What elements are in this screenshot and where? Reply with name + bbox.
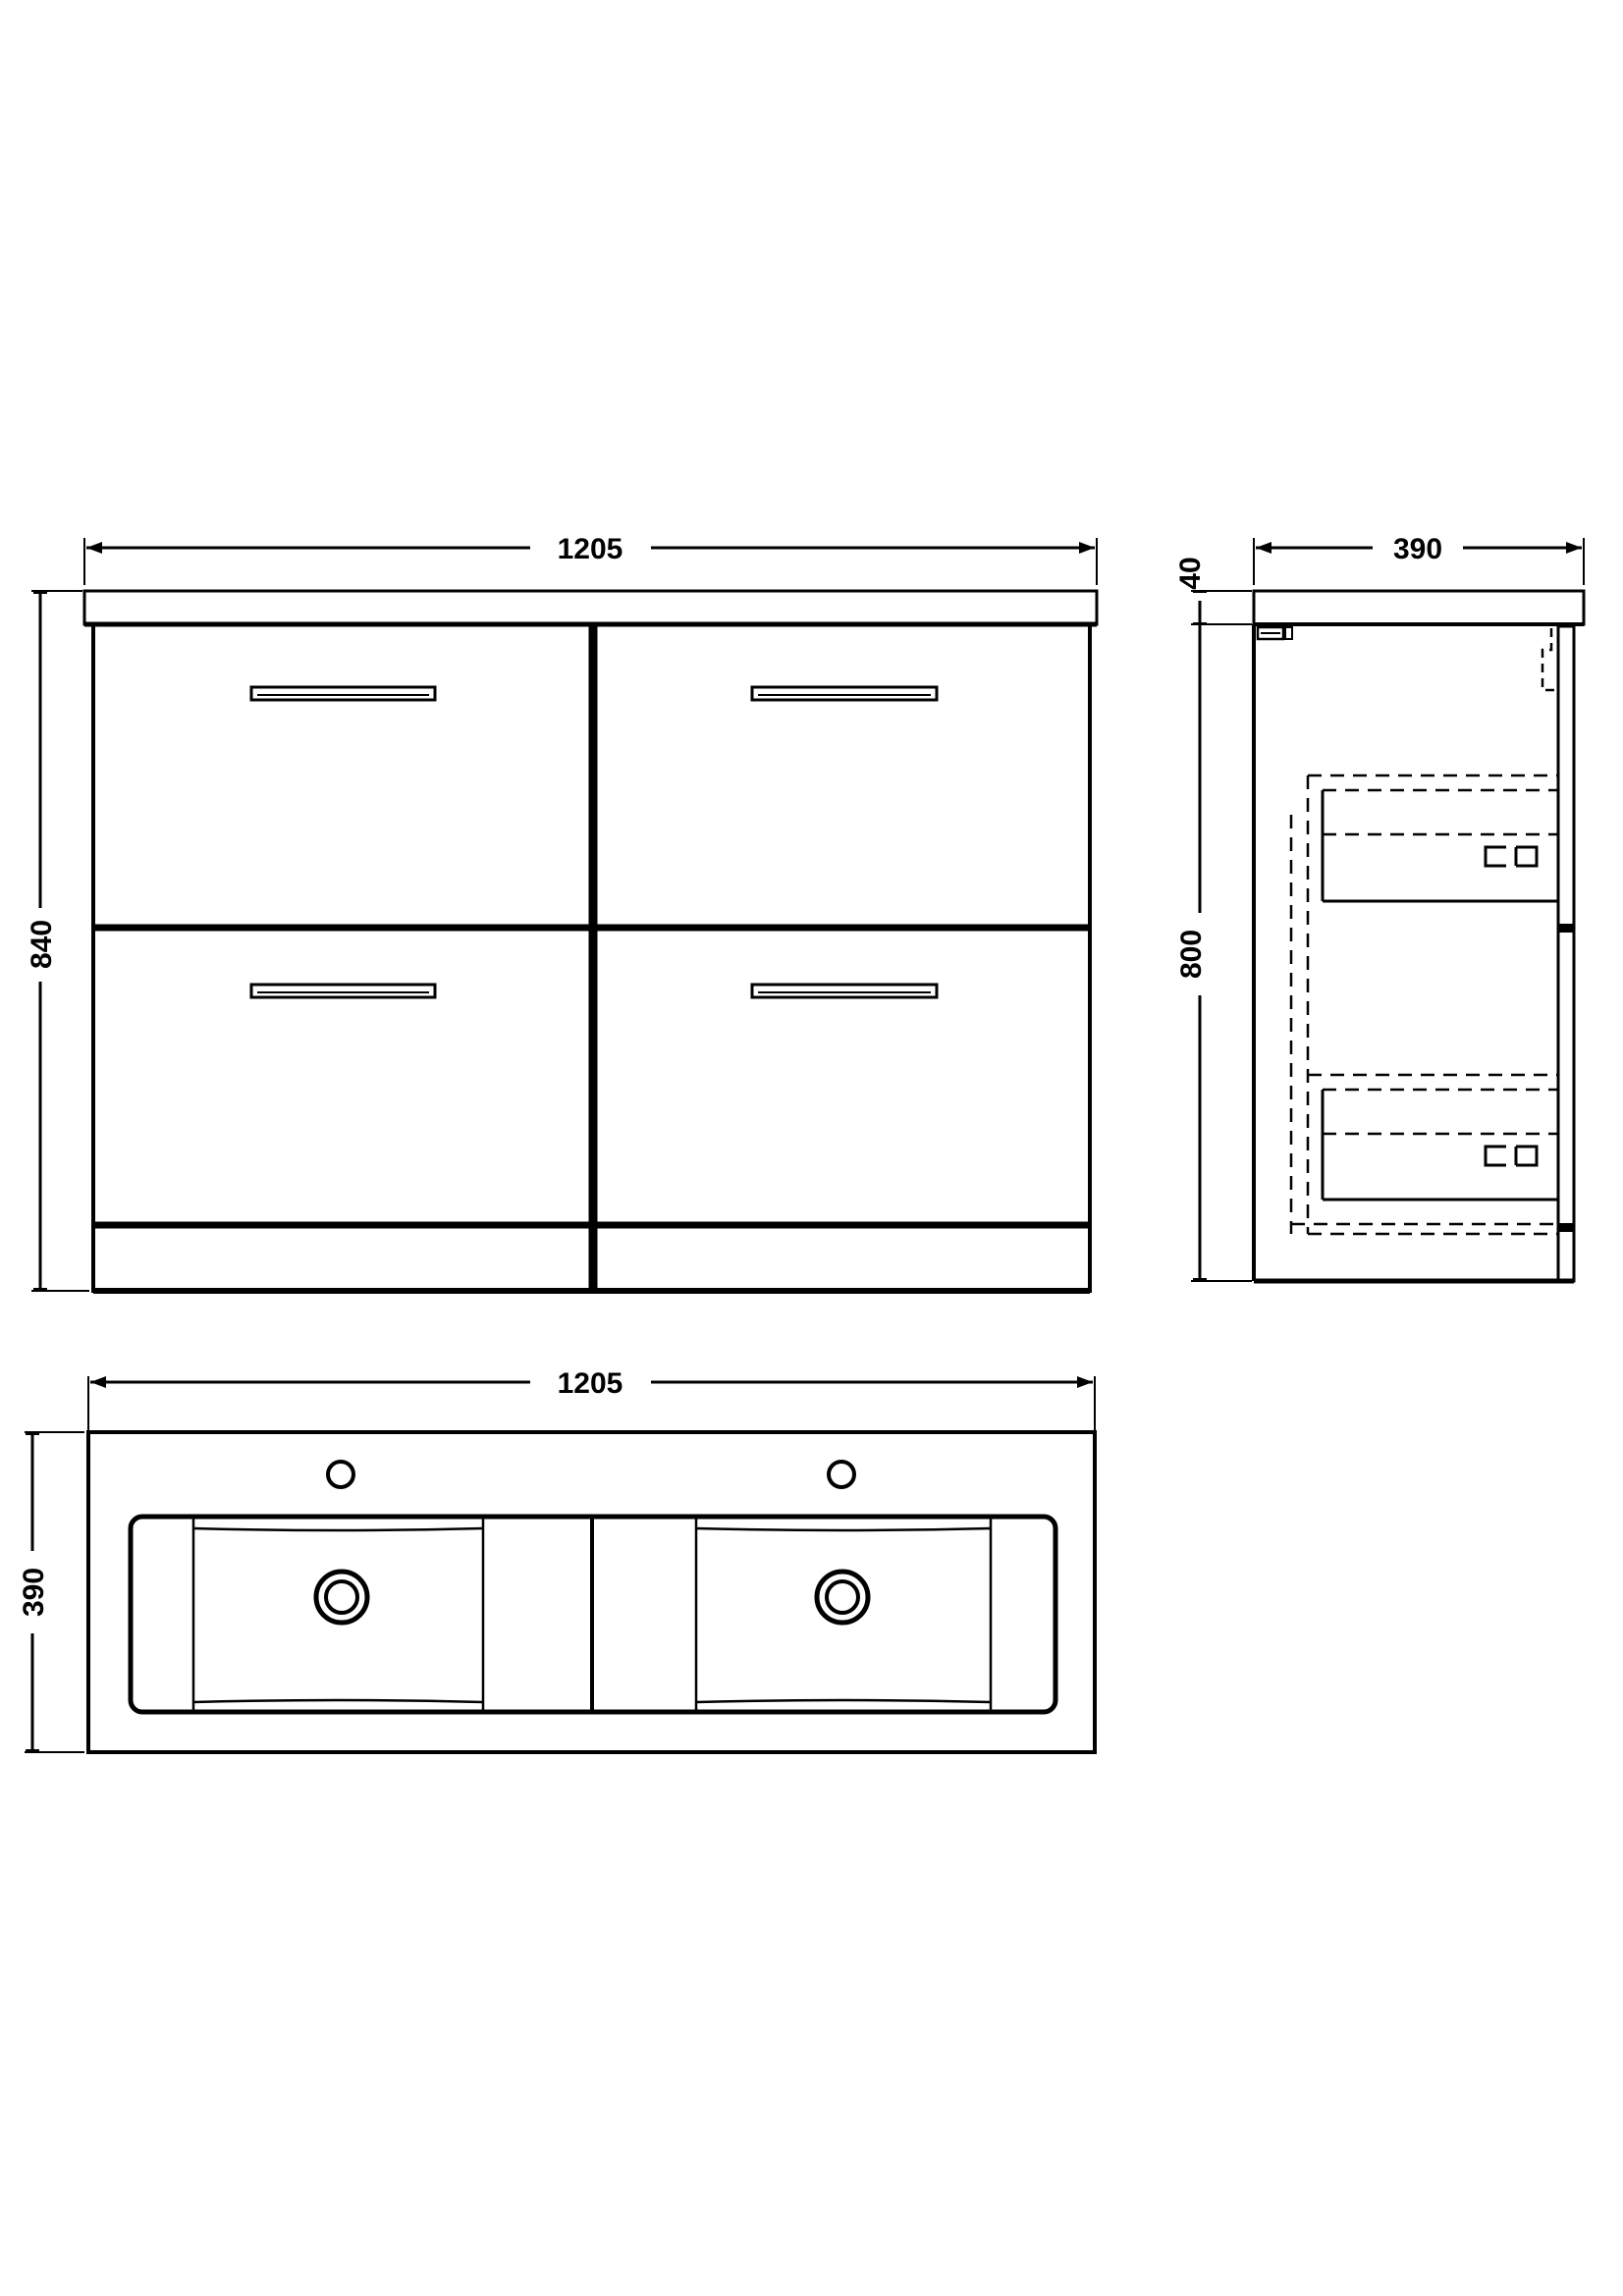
plan-width-dimension: 1205: [88, 1367, 1095, 1430]
arrowhead-left: [86, 542, 102, 554]
plan-view: 1205 390: [18, 1367, 1095, 1752]
drain-right: [817, 1572, 868, 1623]
side-drawer-box-edges: [1323, 790, 1558, 1200]
arrowhead-left: [90, 1376, 106, 1388]
right-bowl-bottom-edge: [696, 1700, 991, 1702]
tap-hole-right: [829, 1462, 854, 1487]
plan-depth-dimension: 390: [18, 1432, 84, 1752]
plan-width-label: 1205: [558, 1367, 623, 1400]
side-depth-label: 390: [1393, 533, 1442, 565]
front-drawer-handle-top-right: [752, 687, 937, 700]
side-worktop-thickness-dimension: 40: [1174, 557, 1252, 624]
front-drawer-handle-bottom-left: [251, 985, 435, 997]
arrowhead-right: [1566, 542, 1582, 554]
front-drawer-handle-top-left: [251, 687, 435, 700]
arrowhead-right: [1079, 542, 1095, 554]
left-bowl-bottom-edge: [193, 1700, 483, 1702]
right-bowl-top-edge: [696, 1528, 991, 1530]
front-width-dimension: 1205: [84, 533, 1097, 585]
front-height-label: 840: [26, 920, 58, 969]
side-elevation-view: 390 40 800: [1174, 533, 1584, 1281]
side-handle-fixing-upper: [1486, 843, 1537, 870]
front-height-dimension: 840: [26, 591, 89, 1291]
front-width-label: 1205: [558, 533, 623, 565]
side-handle-fixing-lower: [1486, 1143, 1537, 1169]
plan-depth-label: 390: [18, 1568, 50, 1617]
side-cabinet-height-label: 800: [1175, 930, 1208, 979]
side-worktop: [1254, 591, 1584, 624]
side-worktop-fixing-clip: [1258, 627, 1292, 639]
arrowhead-right: [1077, 1376, 1093, 1388]
side-bracket-step-hidden: [1542, 628, 1558, 690]
drain-left: [316, 1572, 367, 1623]
front-drawer-handle-bottom-right: [752, 985, 937, 997]
side-drawer-front-column: [1557, 626, 1575, 1281]
arrowhead-left: [1256, 542, 1271, 554]
front-joint: [1557, 924, 1575, 933]
front-elevation-view: 1205 840: [26, 533, 1097, 1291]
side-worktop-thickness-label: 40: [1174, 557, 1207, 589]
side-depth-dimension: 390: [1254, 533, 1584, 585]
front-worktop: [84, 591, 1097, 624]
front-joint: [1557, 1223, 1575, 1232]
technical-drawing-canvas: 1205 840: [0, 0, 1623, 2296]
left-bowl-top-edge: [193, 1528, 483, 1530]
side-cabinet-height-dimension: 800: [1175, 624, 1252, 1281]
tap-hole-left: [328, 1462, 353, 1487]
